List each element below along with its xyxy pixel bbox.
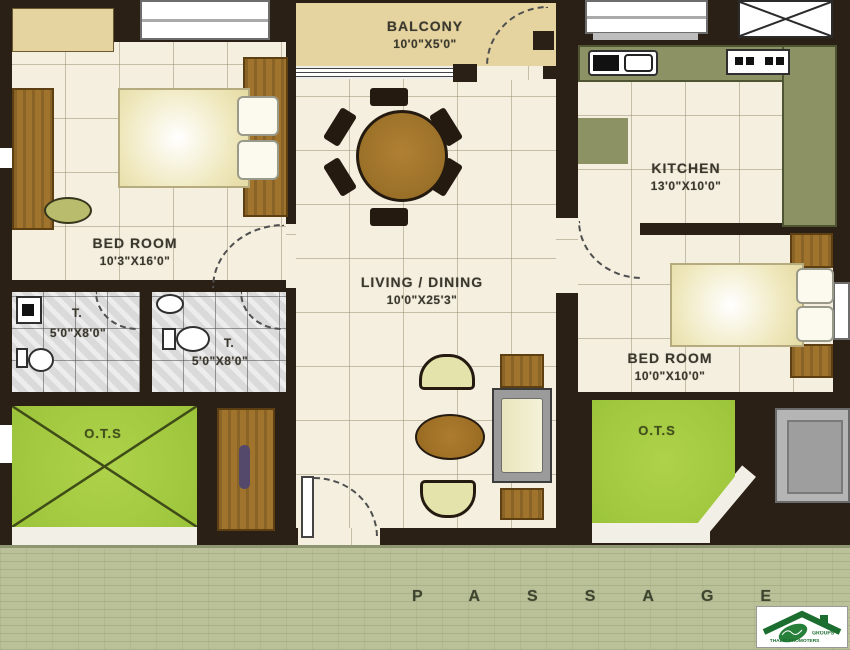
- dining-chair-s: [370, 208, 408, 226]
- stove-burner-3: [765, 57, 773, 65]
- kitchen-label: KITCHEN: [596, 160, 776, 176]
- toilet2-wc-bowl: [176, 326, 210, 352]
- dining-chair-n: [370, 88, 408, 106]
- toilet1-dims: 5'0"X8'0": [18, 326, 138, 340]
- entry-door-handle: [239, 445, 250, 489]
- passage-label: PASSAGE: [412, 588, 818, 606]
- bedroom2-side-window: [833, 282, 850, 340]
- bedroom2-bed: [670, 263, 804, 347]
- bedroom1-label: BED ROOM: [45, 235, 225, 251]
- balcony-slider-window: [296, 66, 456, 79]
- dining-table: [356, 110, 448, 202]
- kitchen-window: [585, 0, 708, 34]
- kitchen-sink-drainboard: [624, 54, 653, 72]
- toilet1-wc-tank: [16, 348, 28, 368]
- toilet2-washbasin: [156, 294, 184, 314]
- bedroom1-loft: [12, 8, 114, 52]
- toilet2-label: T.: [214, 336, 244, 350]
- door-opening-corridor: [556, 218, 578, 293]
- stove-burner-2: [746, 57, 754, 65]
- coffee-table: [415, 414, 485, 460]
- bedroom2-label: BED ROOM: [580, 350, 760, 366]
- lift-shaft: [775, 408, 850, 503]
- bedroom2-pillow-2: [796, 306, 834, 342]
- bedroom2-dims: 10'0"X10'0": [580, 369, 760, 383]
- door-opening-bedroom1: [286, 224, 296, 288]
- bedroom1-window: [140, 0, 270, 40]
- bedroom1-pillow-2: [237, 140, 279, 180]
- kitchen-window-sill: [593, 33, 698, 40]
- ots1-label: O.T.S: [53, 426, 153, 441]
- stove-burner-1: [735, 57, 743, 65]
- living-label: LIVING / DINING: [322, 274, 522, 290]
- logo-line2: THALIS PROMOTERS: [761, 639, 828, 644]
- toilet1-shower-tray: [16, 296, 42, 324]
- left-wall-window1: [0, 148, 12, 168]
- balcony-dims: 10'0"X5'0": [330, 37, 520, 51]
- toilet1-label: T.: [62, 306, 92, 320]
- lift-car: [787, 420, 843, 494]
- ots2-label: O.T.S: [607, 423, 707, 438]
- sofa: [492, 388, 552, 483]
- kitchen-sink: [588, 50, 658, 76]
- floor-plan: PASSAGE: [0, 0, 850, 650]
- logo-line1: GROUPS: [807, 631, 839, 636]
- toilet1-drain: [22, 304, 34, 316]
- bedroom1-pillow-1: [237, 96, 279, 136]
- kitchen-platform: [578, 118, 628, 164]
- bedroom1-stool: [44, 197, 92, 224]
- kitchen-dims: 13'0"X10'0": [596, 179, 776, 193]
- left-wall-window2: [0, 425, 12, 463]
- bedroom2-nightstand-bottom: [790, 344, 833, 378]
- room-ots1: [12, 406, 197, 527]
- ots1-cross-icon: [12, 406, 197, 527]
- toilet2-wc-tank: [162, 328, 176, 350]
- kitchen-stove: [726, 49, 790, 75]
- door-opening-balcony: [475, 66, 543, 80]
- sofa-cushion: [501, 398, 543, 473]
- bedroom1-dims: 10'3"X16'0": [45, 254, 225, 268]
- window-junction-post: [453, 64, 477, 82]
- bedroom1-bed: [118, 88, 250, 188]
- toilet1-wc-bowl: [28, 348, 54, 372]
- duct-hatch-cross-icon: [740, 2, 831, 36]
- side-table-bottom: [500, 488, 544, 520]
- kitchen-sink-basin: [593, 55, 619, 71]
- living-dims: 10'0"X25'3": [322, 293, 522, 307]
- balcony-label: BALCONY: [330, 18, 520, 34]
- duct-hatch: [738, 0, 833, 38]
- stove-burner-4: [776, 57, 784, 65]
- main-door-leaf: [301, 476, 314, 538]
- builder-logo: GROUPS THALIS PROMOTERS: [756, 606, 848, 648]
- ots1-sill: [12, 527, 197, 545]
- side-table-top: [500, 354, 544, 388]
- toilet2-dims: 5'0"X8'0": [160, 354, 280, 368]
- bedroom2-pillow-1: [796, 268, 834, 304]
- entry-door-leaf: [217, 408, 275, 531]
- kitchen-counter-right: [782, 45, 837, 227]
